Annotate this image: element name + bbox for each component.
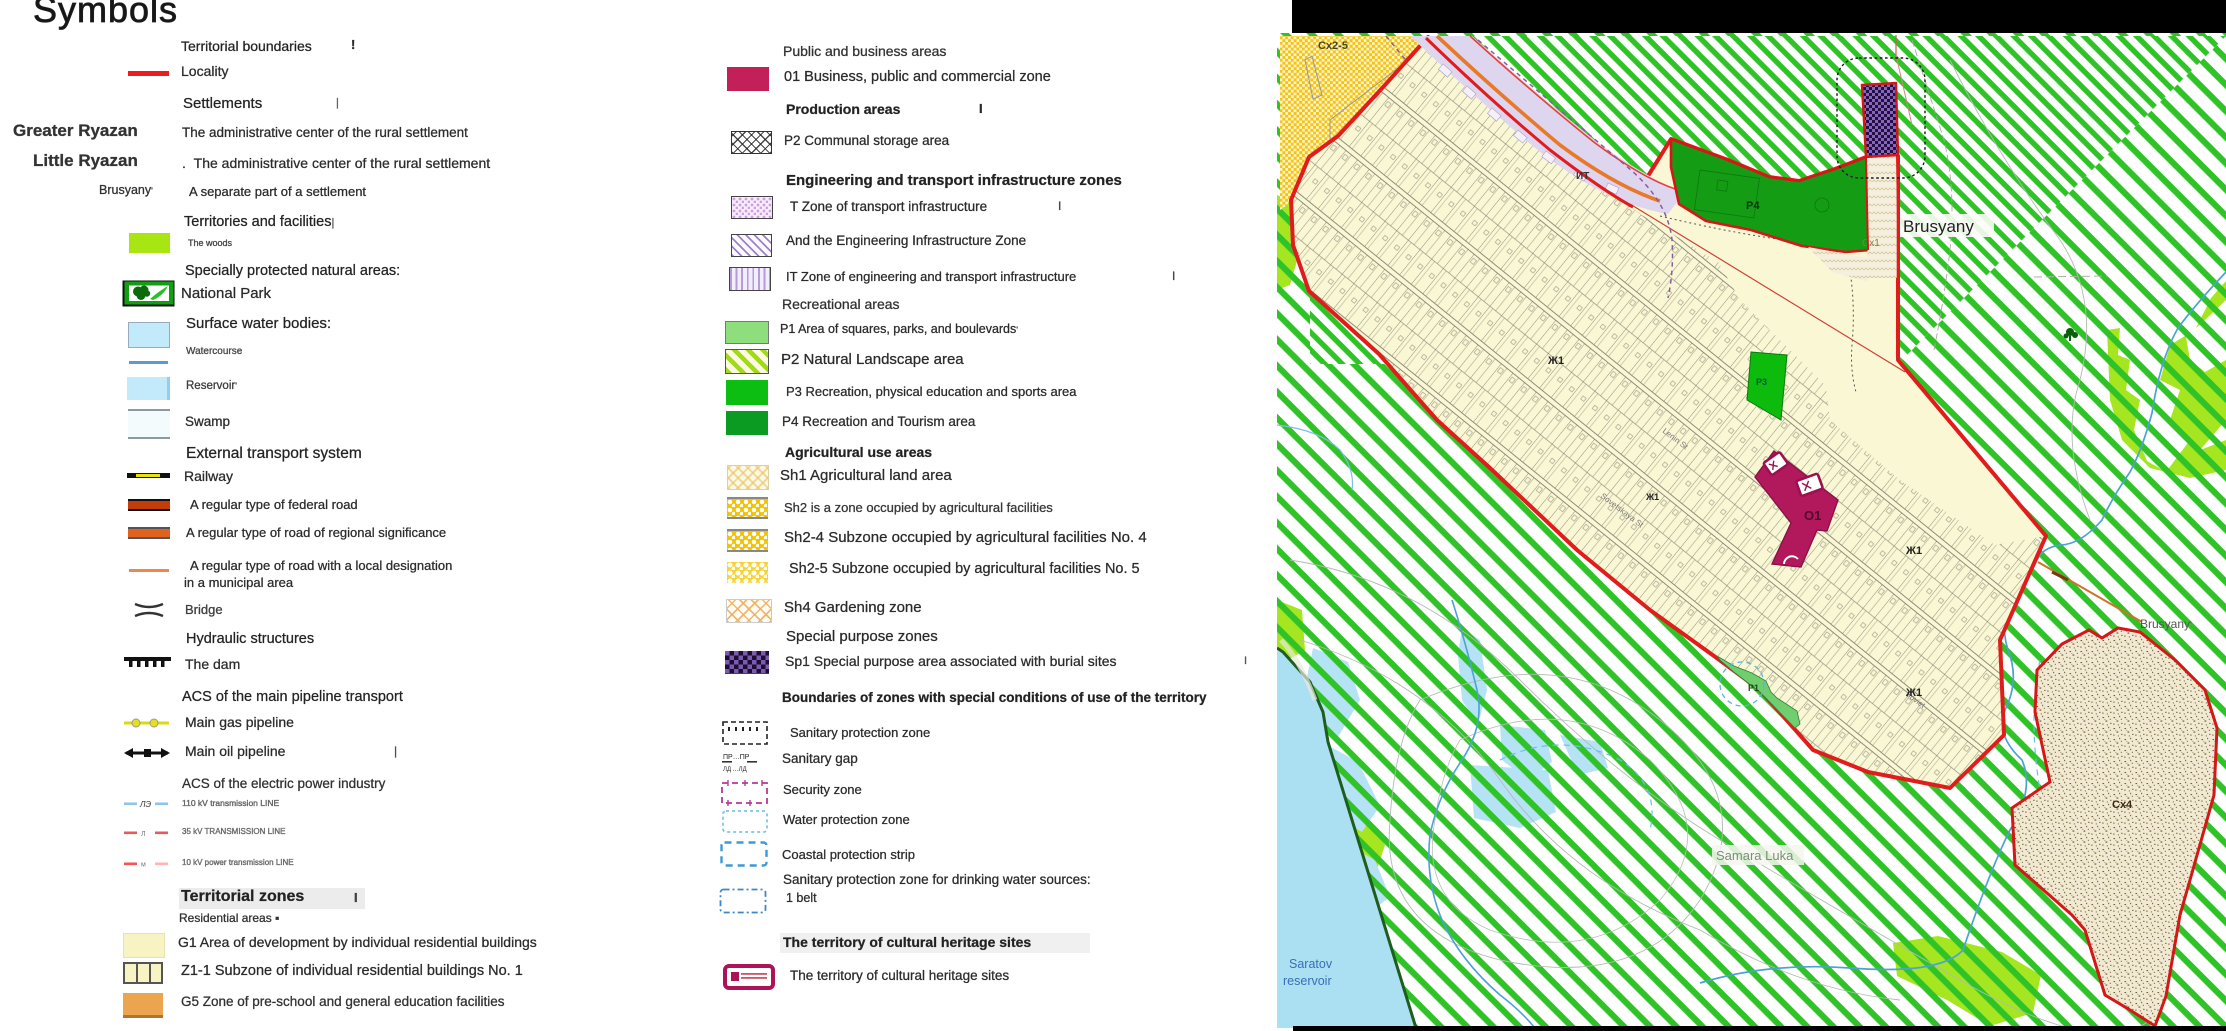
svg-text:P4: P4	[1746, 200, 1760, 212]
svg-text:P1: P1	[1748, 683, 1759, 693]
svg-text:Cx2-5: Cx2-5	[1318, 40, 1348, 52]
svg-text:P3: P3	[1756, 377, 1767, 387]
svg-text:ИТ: ИТ	[1576, 171, 1589, 182]
svg-text:O1: O1	[1804, 508, 1821, 523]
svg-text:ЛД …ЛД: ЛД …ЛД	[723, 767, 747, 773]
svg-text:Brusyany: Brusyany	[1903, 217, 1974, 236]
svg-text:ПР…ПР: ПР…ПР	[723, 754, 750, 761]
svg-text:Saratov: Saratov	[1289, 957, 1333, 971]
svg-text:reservoir: reservoir	[1283, 974, 1332, 988]
svg-text:Brusyany': Brusyany'	[2140, 617, 2192, 631]
svg-text:Ж1: Ж1	[1905, 687, 1922, 699]
svg-text:Cx4: Cx4	[2112, 799, 2133, 811]
svg-text:Samara Luka: Samara Luka	[1716, 848, 1794, 863]
svg-text:Ж1: Ж1	[1547, 355, 1564, 367]
svg-text:Ж1: Ж1	[1645, 492, 1659, 502]
svg-text:Cx1: Cx1	[1862, 238, 1880, 249]
svg-text:Ж1: Ж1	[1905, 545, 1922, 557]
